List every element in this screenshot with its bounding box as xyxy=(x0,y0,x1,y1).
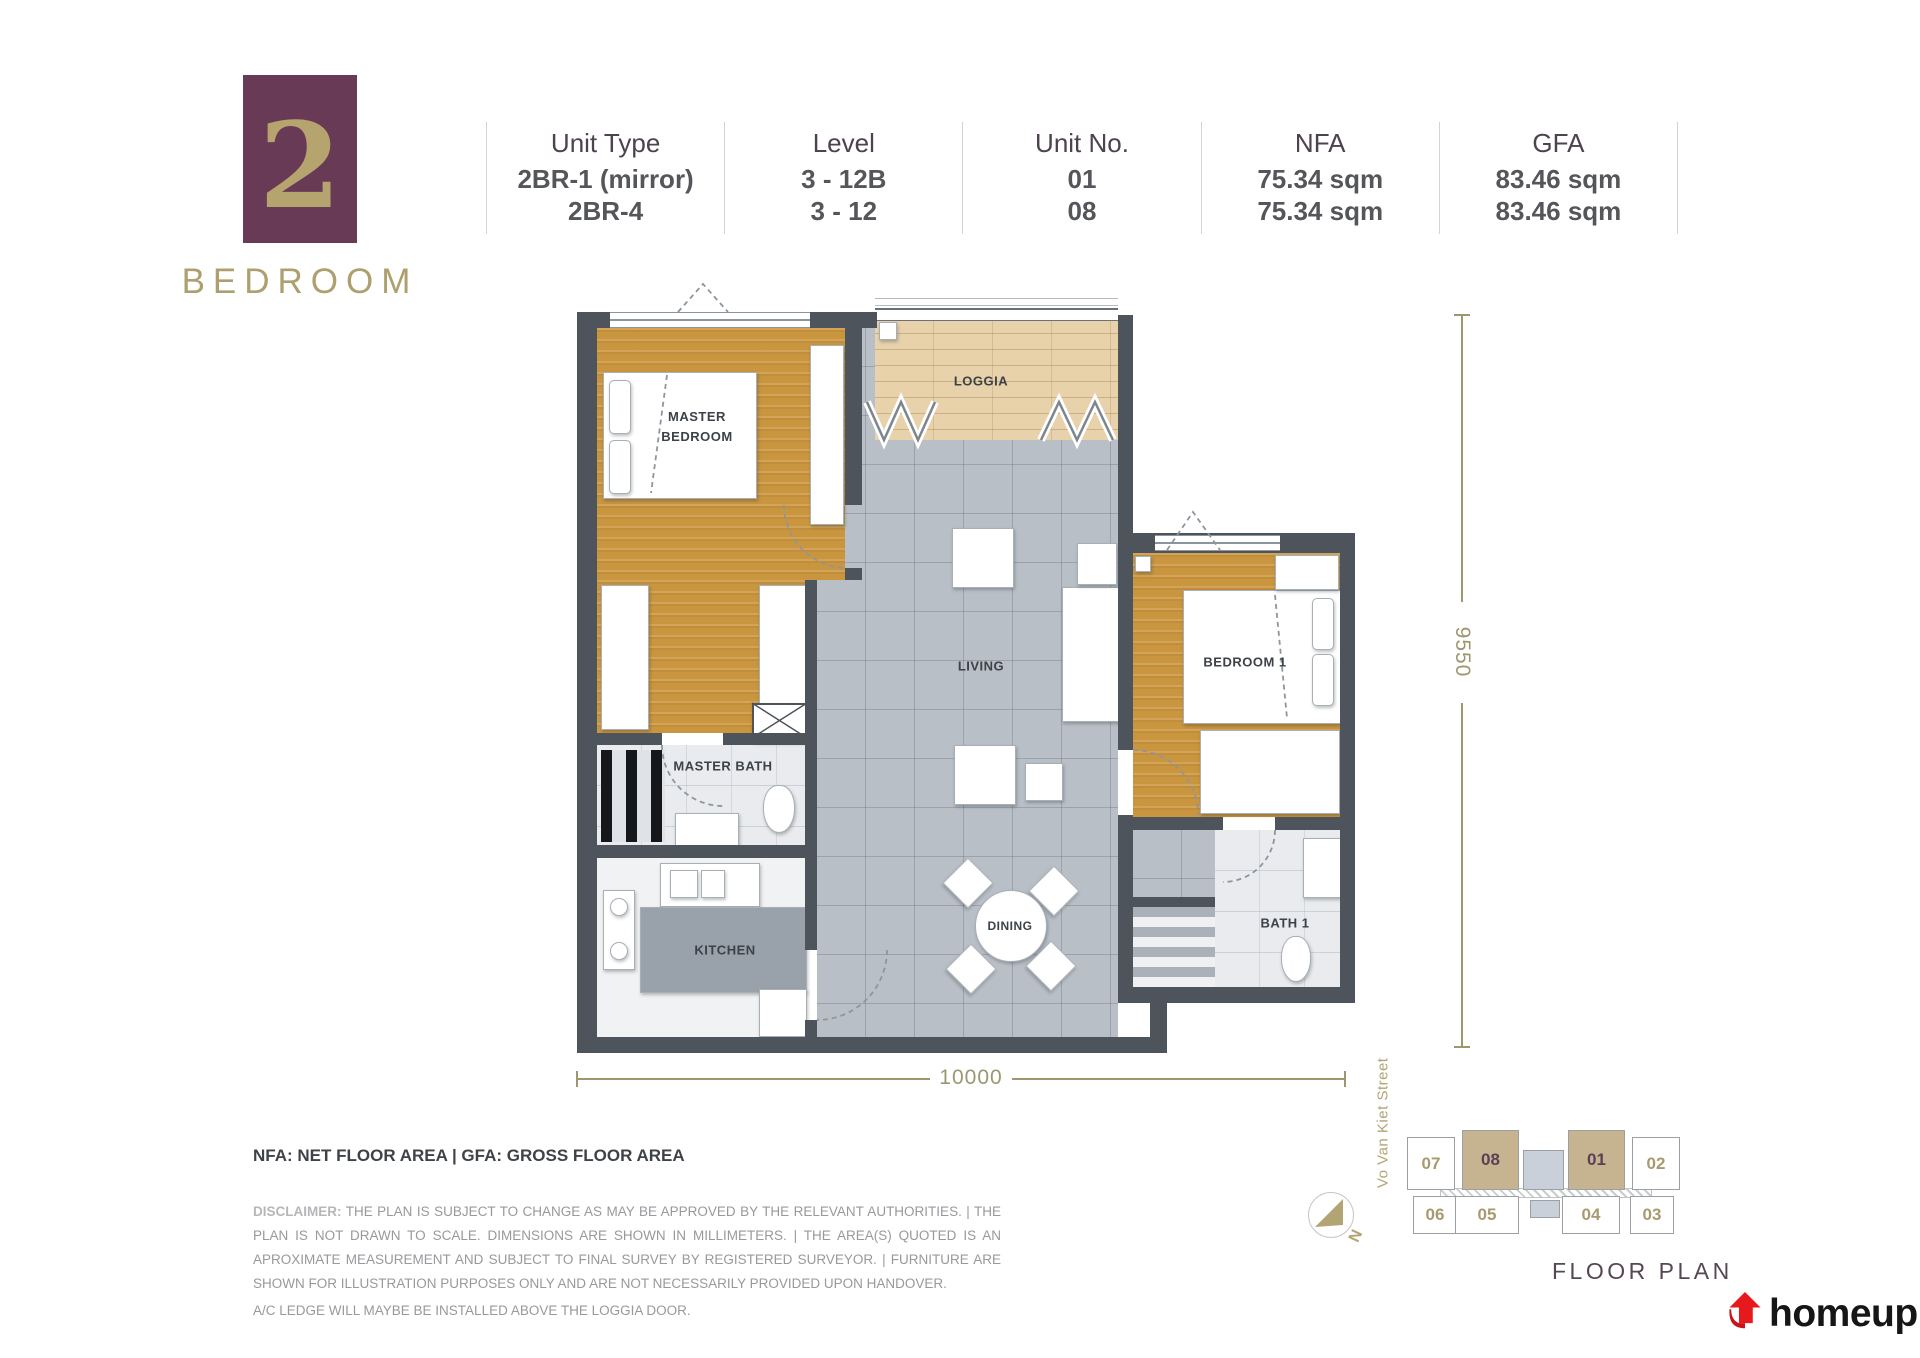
dimension-line-horizontal xyxy=(1012,1078,1345,1080)
room-label-living: LIVING xyxy=(958,659,1004,674)
col-value: 2BR-1 (mirror) xyxy=(487,163,724,195)
disclaimer: DISCLAIMER: THE PLAN IS SUBJECT TO CHANG… xyxy=(253,1200,1001,1296)
col-header: GFA xyxy=(1440,128,1677,159)
room-label-kitchen: KITCHEN xyxy=(694,943,755,958)
dimension-line-horizontal xyxy=(577,1078,930,1080)
col-unit-type: Unit Type 2BR-1 (mirror) 2BR-4 xyxy=(486,122,724,234)
col-header: NFA xyxy=(1202,128,1439,159)
col-value: 75.34 sqm xyxy=(1202,195,1439,227)
col-value: 2BR-4 xyxy=(487,195,724,227)
col-value: 3 - 12B xyxy=(725,163,962,195)
room-label-dining: DINING xyxy=(988,919,1033,933)
keyplan-unit-05: 05 xyxy=(1455,1196,1519,1234)
keyplan-unit-02: 02 xyxy=(1632,1137,1680,1190)
dimension-tick xyxy=(1344,1071,1346,1087)
disclaimer-body: THE PLAN IS SUBJECT TO CHANGE AS MAY BE … xyxy=(253,1204,1001,1291)
col-nfa: NFA 75.34 sqm 75.34 sqm xyxy=(1201,122,1439,234)
unit-count-badge: 2 xyxy=(243,75,357,243)
dimension-tick xyxy=(1454,1046,1470,1048)
col-header: Unit Type xyxy=(487,128,724,159)
keyplan-core xyxy=(1530,1200,1560,1218)
room-label-bath1: BATH 1 xyxy=(1261,916,1310,931)
door-swing-arc xyxy=(651,284,1287,1020)
dimension-width: 10000 xyxy=(930,1066,1012,1090)
brochure-page: 2 BEDROOM Unit Type 2BR-1 (mirror) 2BR-4… xyxy=(0,0,1920,1358)
keyplan-unit-08: 08 xyxy=(1462,1130,1519,1190)
col-value: 83.46 sqm xyxy=(1440,195,1677,227)
keyplan-title: FLOOR PLAN xyxy=(1552,1258,1733,1285)
floor-plan: MASTER BEDROOM LOGGIA LIVING BEDROOM 1 M… xyxy=(575,250,1375,1060)
keyplan-unit-07: 07 xyxy=(1407,1137,1455,1190)
compass-needle-icon xyxy=(1308,1192,1352,1236)
badge-number: 2 xyxy=(259,107,341,225)
dimension-line-vertical xyxy=(1461,315,1463,602)
brand-name: homeup xyxy=(1769,1294,1918,1333)
dimension-line-vertical xyxy=(1461,703,1463,1047)
dimension-height: 9550 xyxy=(1432,622,1492,682)
keyplan-unit-03: 03 xyxy=(1630,1196,1674,1234)
room-label-master-bath: MASTER BATH xyxy=(673,759,772,774)
homeup-house-icon xyxy=(1726,1289,1764,1333)
unit-info-table: Unit Type 2BR-1 (mirror) 2BR-4 Level 3 -… xyxy=(486,122,1678,234)
col-unit-no: Unit No. 01 08 xyxy=(962,122,1200,234)
col-value: 08 xyxy=(963,195,1200,227)
col-value: 83.46 sqm xyxy=(1440,163,1677,195)
room-label-bedroom1: BEDROOM 1 xyxy=(1203,655,1286,670)
col-value: 3 - 12 xyxy=(725,195,962,227)
ac-note: A/C LEDGE WILL MAYBE BE INSTALLED ABOVE … xyxy=(253,1303,691,1318)
disclaimer-label: DISCLAIMER: xyxy=(253,1204,342,1219)
col-level: Level 3 - 12B 3 - 12 xyxy=(724,122,962,234)
keyplan-core xyxy=(1523,1150,1564,1190)
room-label-loggia: LOGGIA xyxy=(954,374,1008,389)
area-legend: NFA: NET FLOOR AREA | GFA: GROSS FLOOR A… xyxy=(253,1146,685,1166)
badge-label: BEDROOM xyxy=(150,262,450,302)
col-gfa: GFA 83.46 sqm 83.46 sqm xyxy=(1439,122,1678,234)
dimension-tick xyxy=(1454,314,1470,316)
keyplan-unit-04: 04 xyxy=(1562,1196,1620,1234)
col-header: Unit No. xyxy=(963,128,1200,159)
keyplan-unit-01: 01 xyxy=(1568,1130,1625,1190)
shaft-x-icon xyxy=(752,703,807,738)
dimension-tick xyxy=(576,1071,578,1087)
col-value: 75.34 sqm xyxy=(1202,163,1439,195)
col-header: Level xyxy=(725,128,962,159)
room-label-master-bedroom: MASTER BEDROOM xyxy=(649,407,745,447)
keyplan-unit-06: 06 xyxy=(1413,1196,1457,1234)
brand-logo: homeup xyxy=(1726,1289,1918,1333)
col-value: 01 xyxy=(963,163,1200,195)
